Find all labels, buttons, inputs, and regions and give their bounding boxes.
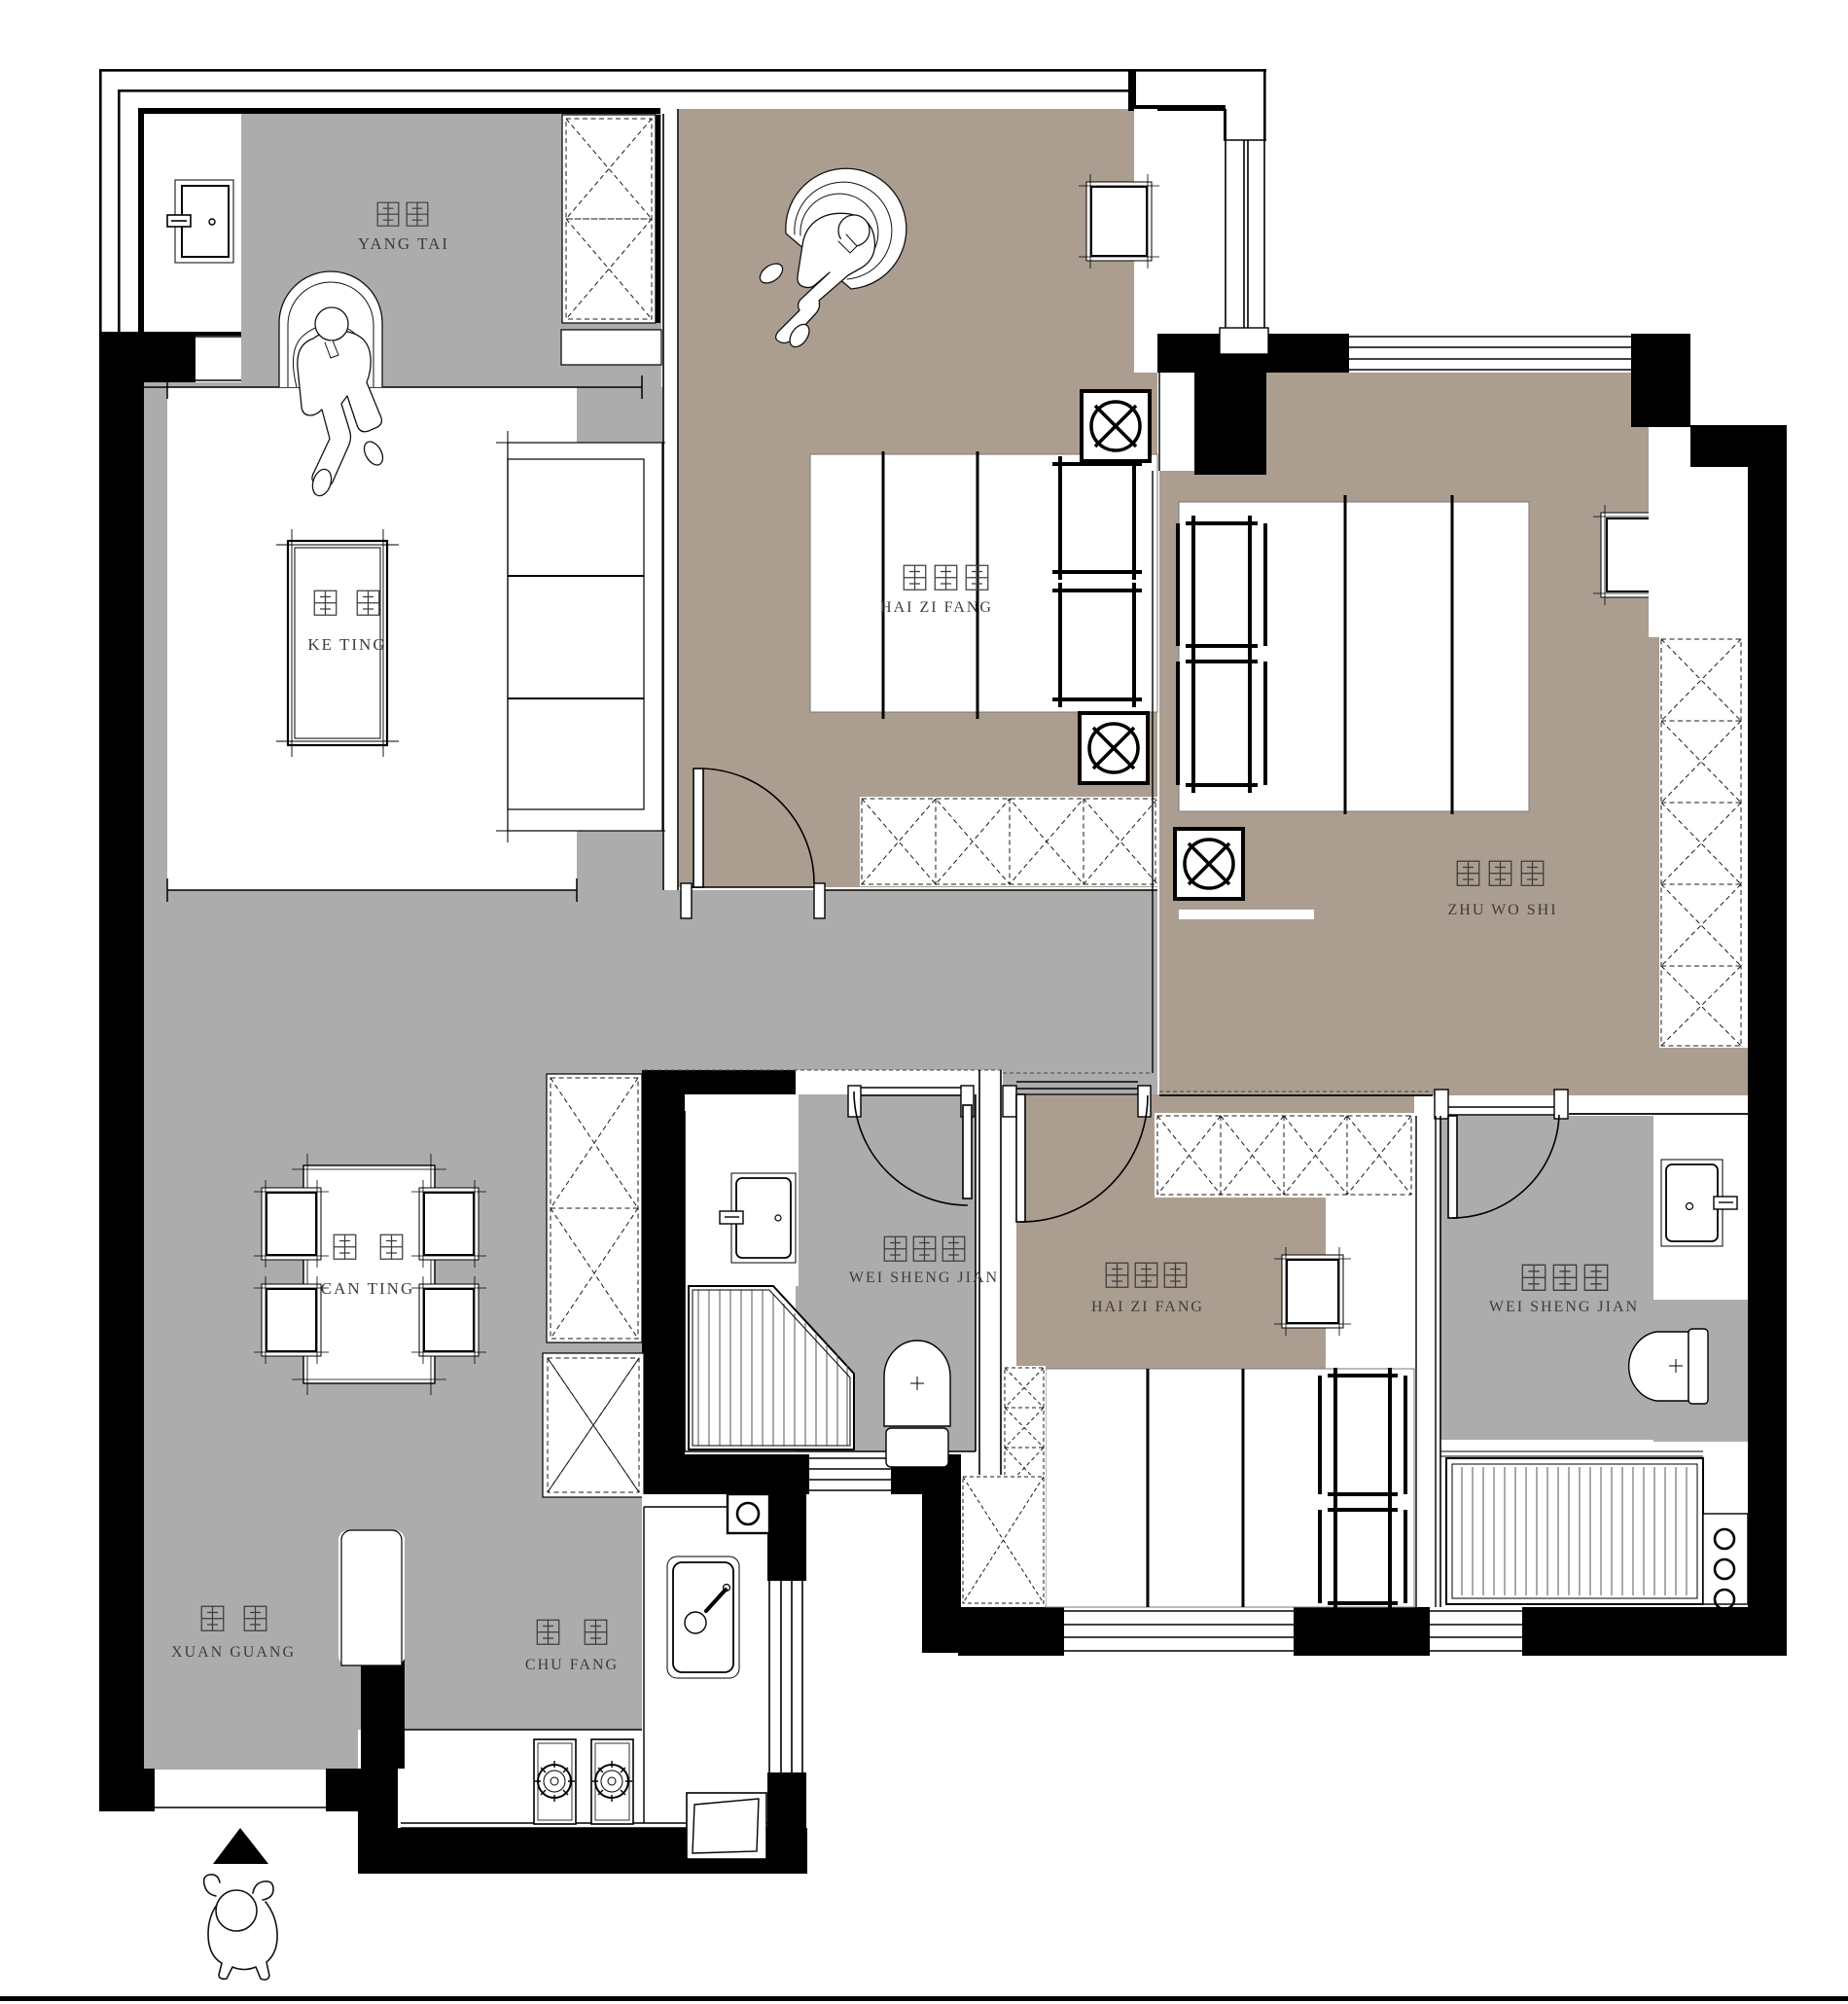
svg-text:KE TING: KE TING [307,635,386,654]
svg-text:WEI SHENG JIAN: WEI SHENG JIAN [849,1270,999,1286]
svg-text:XUAN GUANG: XUAN GUANG [171,1644,296,1661]
svg-text:HAI ZI FANG: HAI ZI FANG [880,599,993,616]
svg-text:CAN TING: CAN TING [321,1279,414,1298]
svg-text:HAI ZI FANG: HAI ZI FANG [1091,1299,1204,1315]
svg-text:CHU FANG: CHU FANG [525,1657,619,1673]
svg-text:YANG TAI: YANG TAI [358,234,449,253]
svg-text:WEI SHENG JIAN: WEI SHENG JIAN [1489,1299,1639,1315]
svg-text:ZHU WO SHI: ZHU WO SHI [1447,902,1557,918]
